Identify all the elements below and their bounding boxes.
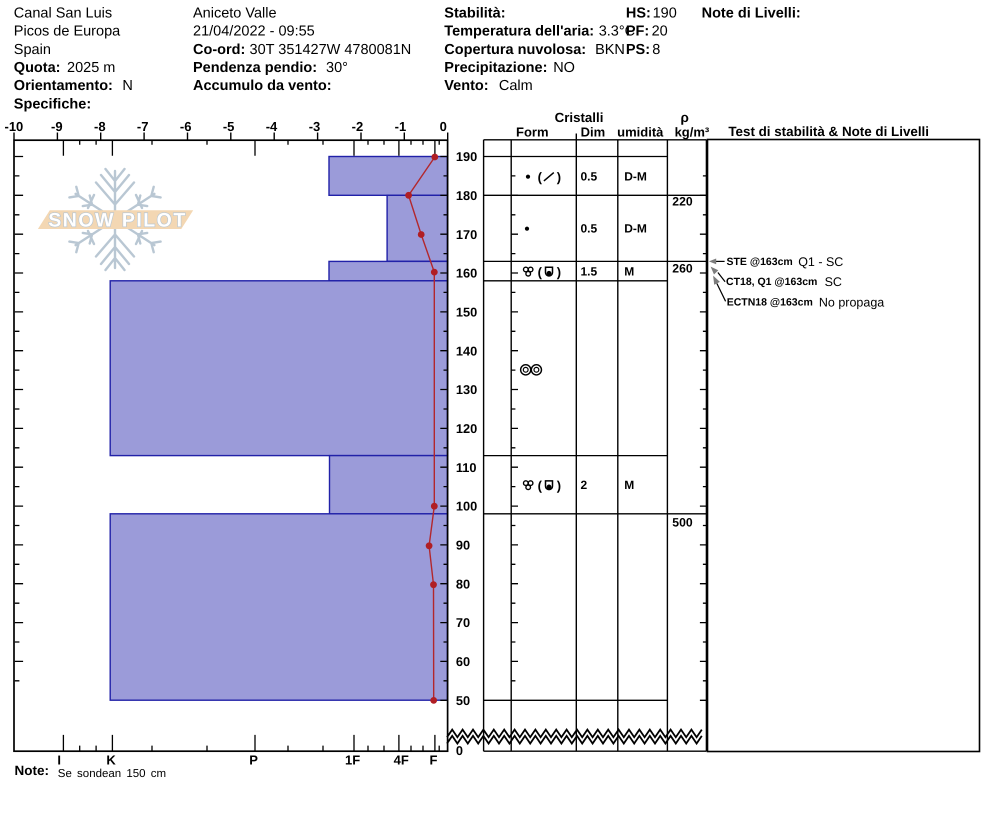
svg-text:): ): [557, 169, 561, 184]
svg-text:70: 70: [456, 615, 470, 630]
svg-text:Copertura nuvolosa:: Copertura nuvolosa:: [444, 42, 586, 58]
svg-text:0: 0: [440, 119, 447, 134]
svg-text:20: 20: [652, 24, 668, 40]
svg-text:): ): [557, 265, 561, 280]
svg-text:(: (: [538, 169, 543, 184]
svg-text:Q1 - SC: Q1 - SC: [798, 255, 843, 269]
svg-text:Spain: Spain: [14, 42, 51, 58]
svg-text:100: 100: [456, 499, 477, 514]
svg-text:-6: -6: [180, 119, 192, 134]
svg-text:-3: -3: [309, 119, 321, 134]
svg-text:PF:: PF:: [626, 24, 649, 40]
svg-text:4F: 4F: [394, 753, 409, 768]
svg-text:NO: NO: [553, 60, 575, 76]
svg-text:Note:: Note:: [15, 763, 50, 778]
svg-text:No propaga: No propaga: [819, 295, 884, 309]
svg-text:M: M: [624, 478, 634, 492]
svg-text:Canal San Luis: Canal San Luis: [14, 5, 112, 21]
svg-text:190: 190: [653, 5, 677, 21]
svg-text:Stabilità:: Stabilità:: [444, 5, 505, 21]
svg-text:Specifiche:: Specifiche:: [14, 96, 91, 112]
svg-text:-1: -1: [395, 119, 407, 134]
svg-text:140: 140: [456, 343, 477, 358]
svg-text:1.5: 1.5: [581, 264, 598, 278]
svg-text:Se sondean 150 cm: Se sondean 150 cm: [58, 768, 166, 780]
svg-text:Orientamento:: Orientamento:: [14, 78, 113, 94]
svg-text:60: 60: [456, 654, 470, 669]
svg-text:K: K: [106, 753, 116, 768]
svg-text:Vento:: Vento:: [444, 78, 488, 94]
svg-text:170: 170: [456, 227, 477, 242]
svg-text:50: 50: [456, 693, 470, 708]
svg-text:500: 500: [672, 516, 693, 530]
svg-text:Dim: Dim: [581, 125, 606, 140]
svg-text:umidità: umidità: [617, 125, 664, 140]
svg-text:): ): [557, 478, 561, 493]
svg-text:180: 180: [456, 188, 477, 203]
svg-text:-9: -9: [51, 119, 63, 134]
svg-text:-8: -8: [94, 119, 106, 134]
svg-text:2: 2: [581, 478, 588, 492]
svg-text:120: 120: [456, 421, 477, 436]
svg-text:P: P: [249, 753, 258, 768]
svg-text:160: 160: [456, 266, 477, 281]
svg-text:2025 m: 2025 m: [67, 60, 115, 76]
svg-text:Aniceto Valle: Aniceto Valle: [193, 5, 277, 21]
svg-text:ECTN18 @163cm: ECTN18 @163cm: [727, 296, 813, 308]
svg-text:M: M: [624, 264, 634, 278]
svg-text:STE @163cm: STE @163cm: [727, 256, 793, 268]
svg-text:110: 110: [456, 460, 477, 475]
svg-text:0: 0: [456, 743, 463, 758]
svg-text:(: (: [538, 265, 543, 280]
svg-text:Accumulo da vento:: Accumulo da vento:: [193, 78, 332, 94]
svg-text:-7: -7: [137, 119, 149, 134]
svg-text:N: N: [122, 78, 132, 94]
svg-text:-10: -10: [5, 119, 24, 134]
svg-text:220: 220: [672, 194, 693, 208]
svg-text:-5: -5: [223, 119, 235, 134]
svg-text:Note di Livelli:: Note di Livelli:: [702, 5, 801, 21]
svg-text:Co-ord:: Co-ord:: [193, 42, 245, 58]
svg-text:-2: -2: [352, 119, 364, 134]
svg-text:30°: 30°: [326, 60, 348, 76]
svg-text:Quota:: Quota:: [14, 60, 61, 76]
svg-text:CT18, Q1 @163cm: CT18, Q1 @163cm: [726, 276, 817, 288]
svg-text:Pendenza pendio:: Pendenza pendio:: [193, 60, 317, 76]
svg-text:Precipitazione:: Precipitazione:: [444, 60, 547, 76]
svg-text:kg/m³: kg/m³: [675, 125, 710, 140]
svg-text:F: F: [430, 753, 438, 768]
svg-text:I: I: [57, 753, 61, 768]
svg-text:0.5: 0.5: [581, 169, 598, 183]
svg-text:80: 80: [456, 576, 470, 591]
svg-text:190: 190: [456, 149, 477, 164]
svg-text:21/04/2022 - 09:55: 21/04/2022 - 09:55: [193, 24, 315, 40]
svg-text:D-M: D-M: [624, 222, 647, 236]
svg-text:(: (: [538, 478, 543, 493]
svg-text:Cristalli: Cristalli: [555, 110, 604, 125]
svg-text:Temperatura dell'aria:: Temperatura dell'aria:: [444, 24, 594, 40]
svg-text:Form: Form: [516, 125, 549, 140]
svg-text:1F: 1F: [345, 753, 360, 768]
svg-text:SNOW PILOT: SNOW PILOT: [48, 209, 187, 231]
svg-text:PS:: PS:: [626, 42, 650, 58]
svg-text:0.5: 0.5: [581, 222, 598, 236]
svg-text:ρ: ρ: [681, 110, 689, 125]
svg-text:Calm: Calm: [499, 78, 533, 94]
svg-text:260: 260: [672, 262, 693, 276]
svg-text:HS:: HS:: [626, 5, 651, 21]
svg-text:130: 130: [456, 382, 477, 397]
svg-text:150: 150: [456, 305, 477, 320]
svg-text:Picos de Europa: Picos de Europa: [14, 24, 121, 40]
svg-text:8: 8: [652, 42, 660, 58]
svg-text:BKN: BKN: [595, 42, 625, 58]
svg-text:D-M: D-M: [624, 169, 647, 183]
svg-text:SC: SC: [825, 275, 842, 289]
svg-text:90: 90: [456, 538, 470, 553]
svg-text:Test di stabilità & Note di Li: Test di stabilità & Note di Livelli: [728, 124, 929, 139]
svg-text:30T 351427W 4780081N: 30T 351427W 4780081N: [250, 42, 412, 58]
svg-text:-4: -4: [266, 119, 278, 134]
